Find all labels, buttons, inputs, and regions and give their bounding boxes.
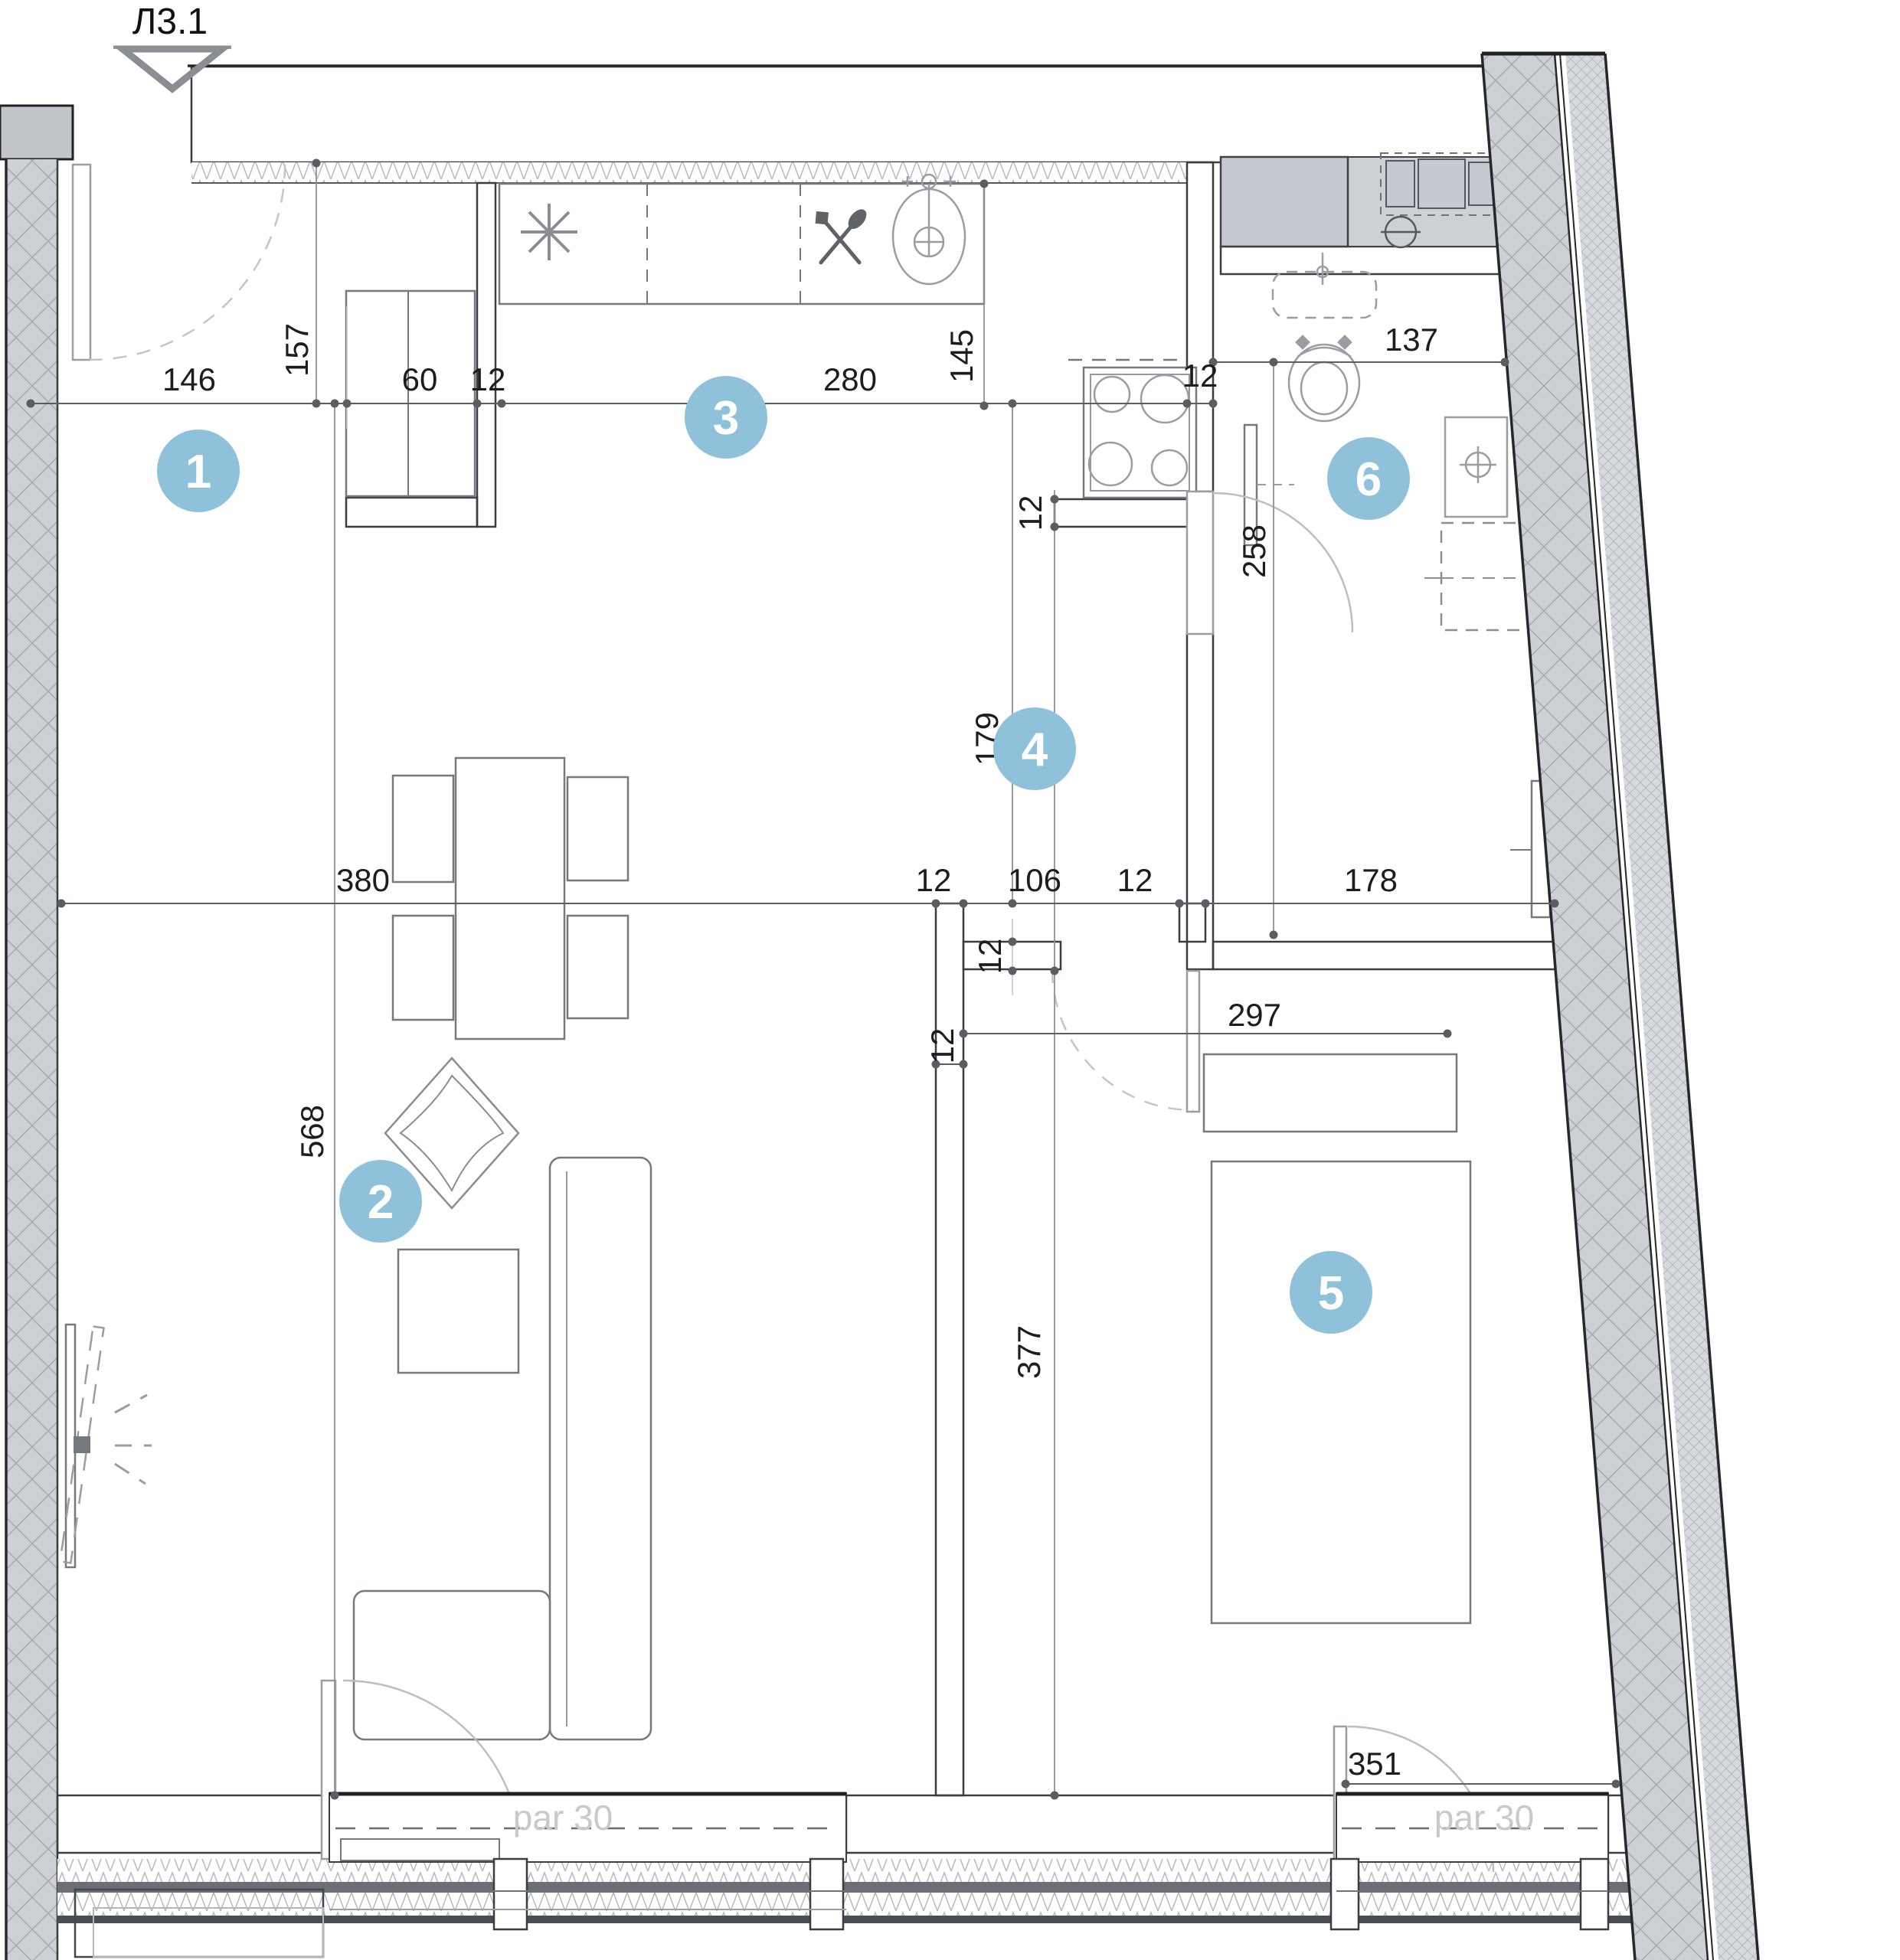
tv-icon	[60, 1325, 152, 1567]
technical-shaft	[1221, 153, 1520, 247]
dim-label: 12	[1182, 358, 1218, 394]
washing-machine	[1424, 523, 1530, 630]
mullion	[810, 1859, 843, 1929]
mullion	[1331, 1859, 1359, 1929]
entry-wall-stub	[346, 498, 477, 527]
sofa	[354, 1158, 651, 1739]
dim-label: 60	[402, 361, 438, 397]
bathroom-fixtures	[1244, 253, 1533, 630]
dim-label: 297	[1228, 997, 1281, 1033]
kitchen-wall-stub	[1055, 499, 1195, 527]
dim-label: 12	[924, 1028, 960, 1064]
insulation-strip	[57, 1893, 1654, 1916]
room-number: 3	[713, 392, 739, 445]
bathroom-top-wall	[1221, 247, 1505, 274]
dim-label: 568	[294, 1105, 330, 1158]
room-number: 1	[185, 446, 211, 498]
shaft-block	[1221, 157, 1348, 247]
dim-label: 12	[1012, 495, 1048, 531]
chair	[393, 916, 453, 1020]
bedroom-furniture	[1204, 781, 1550, 1623]
entry-closet-wall	[477, 183, 495, 527]
bed	[1212, 1161, 1470, 1623]
parapet-note: par 30	[1434, 1798, 1534, 1837]
mullion	[494, 1859, 527, 1929]
dim-label: 106	[1008, 862, 1061, 898]
dim-label: 178	[1344, 862, 1398, 898]
dim-label: 380	[336, 862, 390, 898]
dim-label: 280	[823, 361, 877, 397]
dim-label: 12	[916, 862, 952, 898]
section-marker: Л3.1	[113, 2, 231, 89]
dim-label: 12	[1117, 862, 1153, 898]
section-marker-label: Л3.1	[132, 2, 208, 42]
room-number: 2	[368, 1176, 394, 1229]
toilet-icon	[1289, 335, 1359, 421]
chair	[567, 777, 628, 880]
entrance-door	[73, 165, 285, 360]
dim-label: 377	[1011, 1325, 1047, 1379]
dim-label: 12	[972, 939, 1008, 975]
parapet-note: par 30	[513, 1798, 613, 1837]
coffee-table	[398, 1249, 518, 1373]
right-wall	[1482, 54, 1758, 1960]
mullion	[1581, 1859, 1608, 1929]
stove-icon	[1068, 360, 1196, 498]
dim-label: 351	[1348, 1746, 1401, 1782]
kitchen-counter	[499, 175, 984, 304]
room-number: 4	[1022, 724, 1048, 776]
left-wall	[0, 106, 73, 1960]
hall-wall-stub	[1179, 903, 1205, 942]
dining-set	[393, 758, 628, 1039]
dim-label: 146	[162, 361, 216, 397]
dim-label: 12	[470, 361, 506, 397]
bedroom-wall-right	[1213, 942, 1573, 969]
dim-label: 258	[1236, 524, 1272, 578]
bedroom-door	[1052, 969, 1199, 1112]
wardrobe	[1204, 1054, 1457, 1132]
room-number: 5	[1318, 1267, 1344, 1320]
bath-sink	[1273, 253, 1376, 318]
dining-table	[456, 758, 564, 1039]
dim-label: 137	[1385, 322, 1438, 358]
chair	[567, 916, 628, 1018]
star-symbol	[521, 204, 577, 260]
insulation-strip	[191, 162, 1187, 182]
dim-label: 145	[943, 329, 979, 383]
room-number: 6	[1356, 453, 1382, 506]
floor-plan: 146 60 12 280 12 137 380 12 106 12 178 2…	[0, 0, 1900, 1960]
bathroom-wall-lower	[1187, 632, 1213, 969]
chair	[393, 776, 453, 882]
dim-label: 157	[279, 323, 315, 377]
direction-arrow-icon	[123, 49, 222, 89]
